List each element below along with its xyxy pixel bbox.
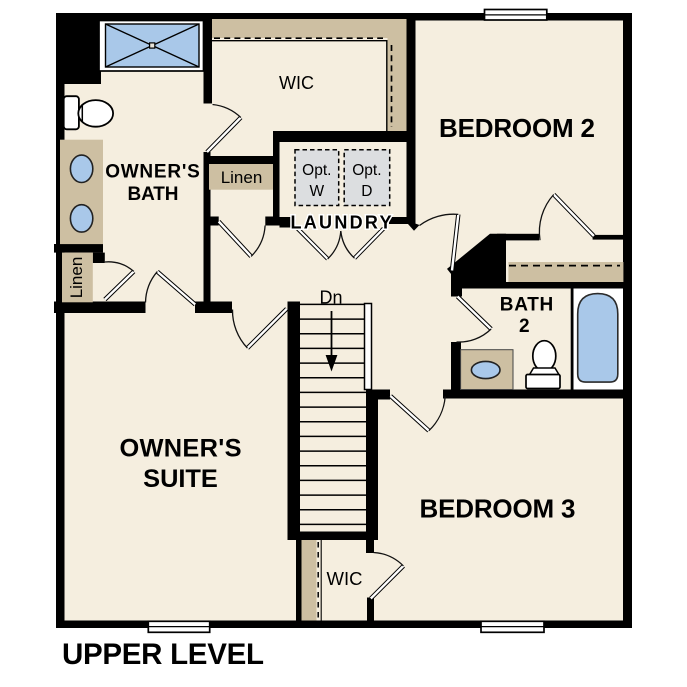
svg-text:Opt.: Opt.: [302, 162, 331, 179]
svg-text:UPPER LEVEL: UPPER LEVEL: [62, 638, 264, 671]
svg-text:Opt.: Opt.: [352, 162, 381, 179]
svg-text:LAUNDRY: LAUNDRY: [291, 213, 392, 233]
svg-text:W: W: [309, 183, 324, 200]
svg-text:WIC: WIC: [327, 568, 363, 589]
svg-text:BEDROOM 2: BEDROOM 2: [439, 113, 595, 143]
svg-text:2: 2: [519, 316, 530, 337]
svg-text:Linen: Linen: [221, 168, 263, 187]
svg-text:SUITE: SUITE: [143, 465, 218, 493]
svg-text:BATH: BATH: [500, 294, 554, 315]
svg-text:D: D: [361, 183, 372, 200]
svg-text:OWNER'S: OWNER'S: [120, 435, 242, 463]
svg-text:Linen: Linen: [67, 257, 86, 299]
svg-text:BATH: BATH: [128, 184, 179, 205]
svg-text:WIC: WIC: [279, 73, 314, 93]
svg-text:Dn: Dn: [319, 288, 342, 308]
svg-text:OWNER'S: OWNER'S: [105, 162, 200, 183]
svg-text:BEDROOM 3: BEDROOM 3: [420, 494, 576, 524]
